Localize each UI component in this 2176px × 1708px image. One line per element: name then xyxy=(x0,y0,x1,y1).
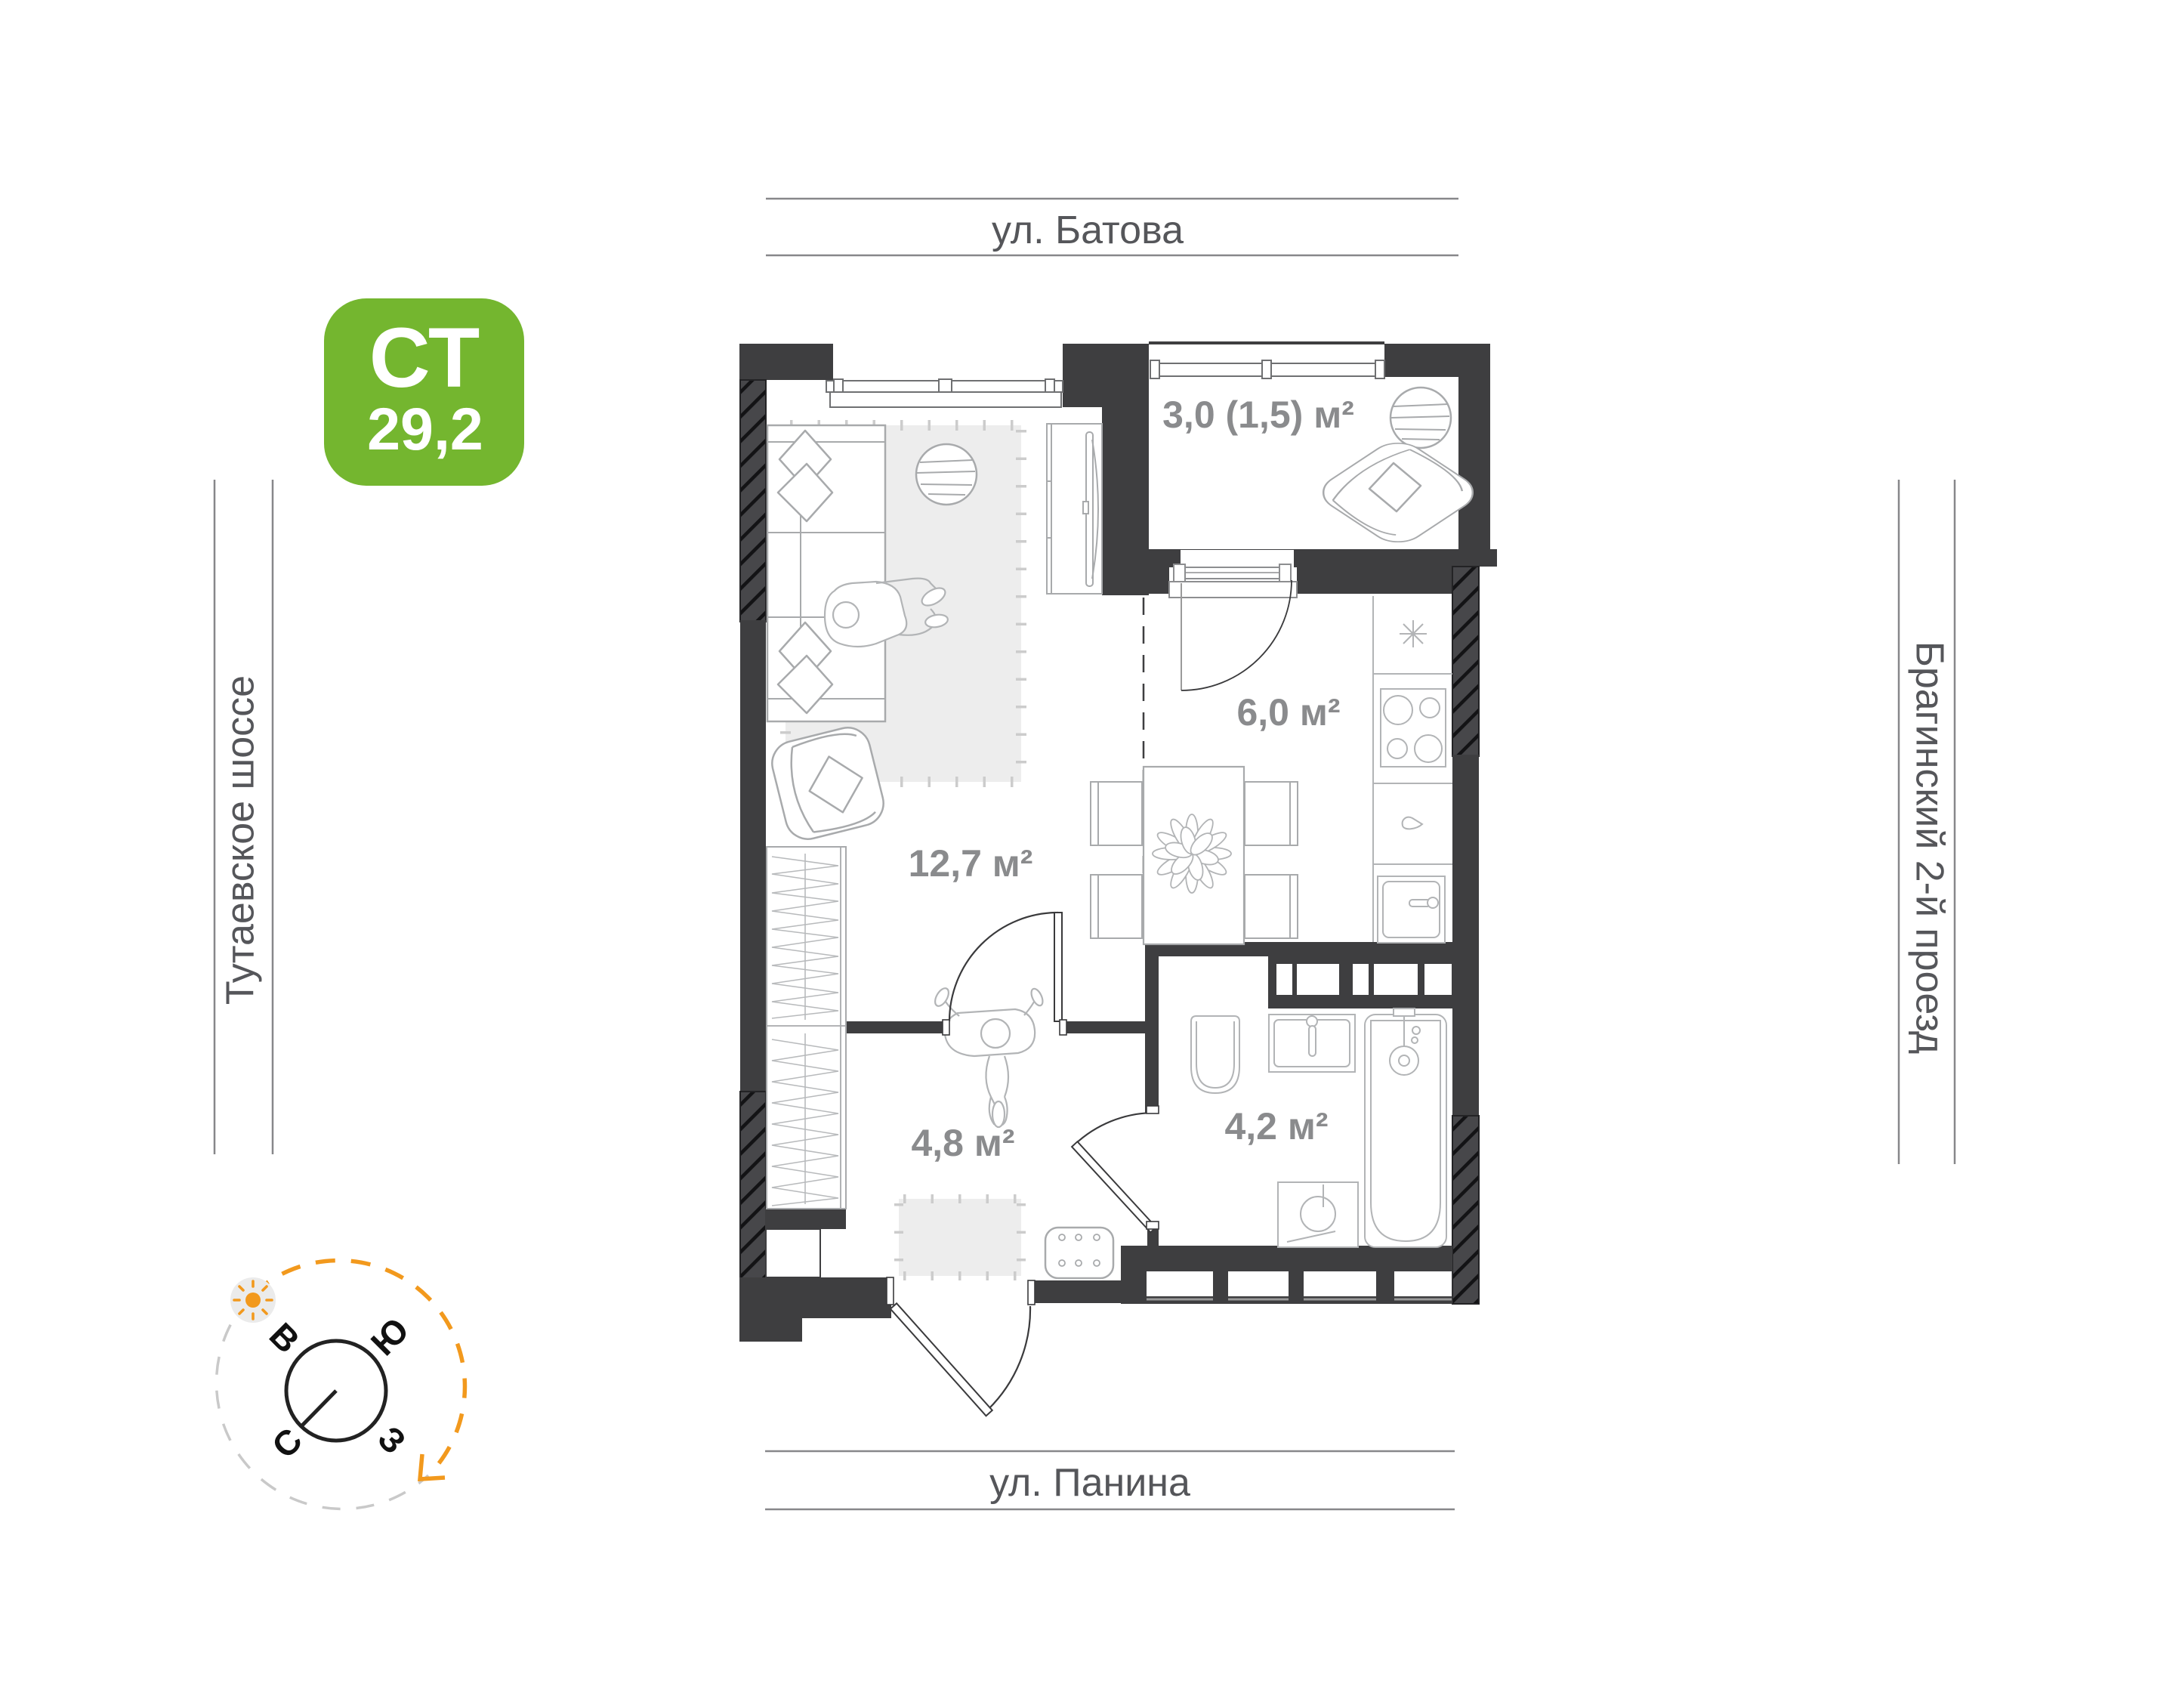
svg-text:6,0 м²: 6,0 м² xyxy=(1236,691,1340,734)
svg-text:Тутаевское шоссе: Тутаевское шоссе xyxy=(219,675,263,1005)
svg-text:12,7 м²: 12,7 м² xyxy=(909,842,1033,885)
svg-text:29,2: 29,2 xyxy=(367,395,483,462)
svg-text:ул. Панина: ул. Панина xyxy=(989,1461,1190,1505)
svg-text:4,2 м²: 4,2 м² xyxy=(1224,1105,1328,1147)
svg-text:4,8 м²: 4,8 м² xyxy=(911,1122,1014,1164)
svg-text:ул. Батова: ул. Батова xyxy=(992,208,1184,252)
svg-text:Брагинский 2-й проезд: Брагинский 2-й проезд xyxy=(1907,641,1951,1055)
svg-text:3,0 (1,5) м²: 3,0 (1,5) м² xyxy=(1162,394,1354,436)
svg-text:СТ: СТ xyxy=(369,310,480,405)
